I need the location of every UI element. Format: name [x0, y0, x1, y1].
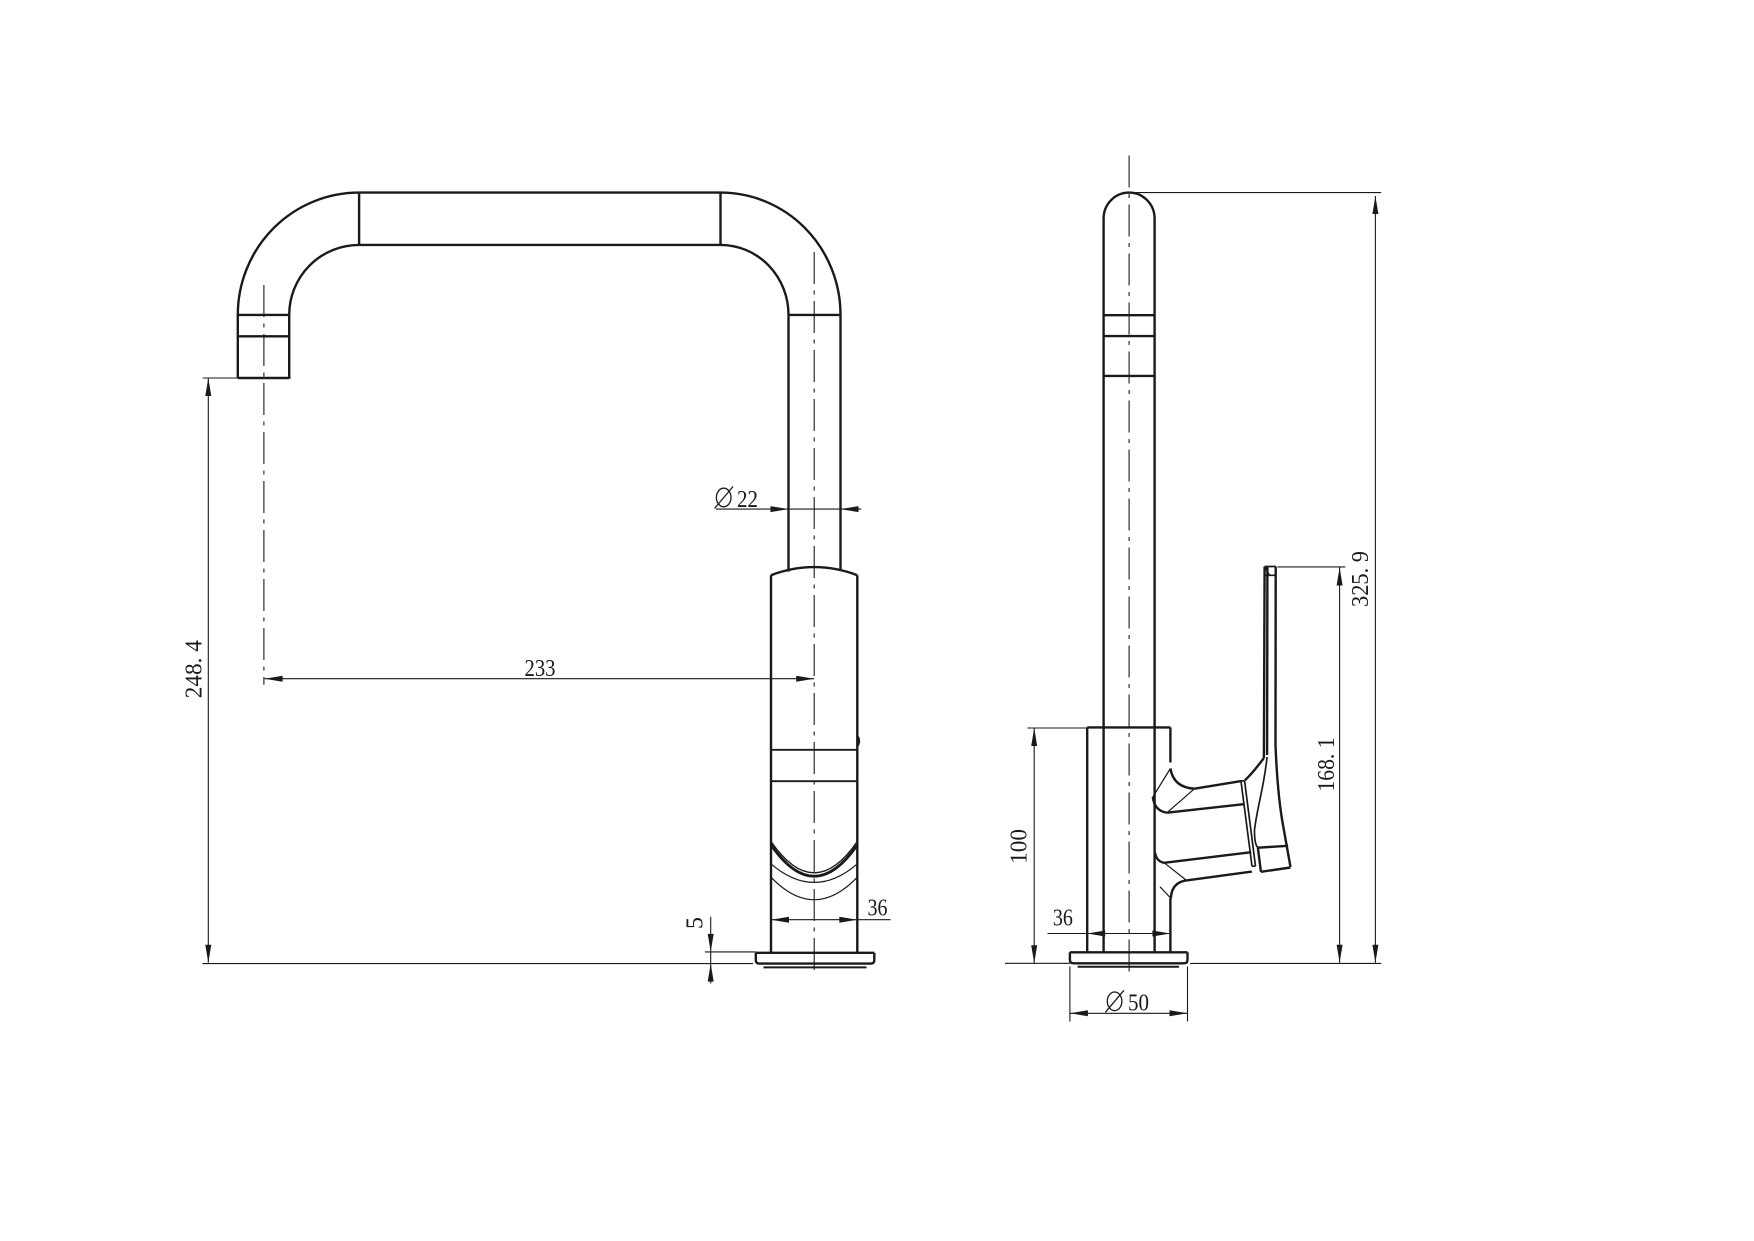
svg-text:36: 36	[868, 896, 888, 922]
svg-text:233: 233	[525, 656, 556, 682]
svg-text:5: 5	[683, 917, 709, 929]
svg-text:100: 100	[1006, 829, 1032, 864]
svg-text:50: 50	[1128, 991, 1149, 1017]
svg-text:36: 36	[1053, 906, 1073, 932]
svg-text:168. 1: 168. 1	[1314, 738, 1340, 792]
svg-text:248. 4: 248. 4	[181, 640, 207, 698]
svg-text:22: 22	[737, 487, 758, 513]
svg-text:325. 9: 325. 9	[1348, 551, 1374, 607]
